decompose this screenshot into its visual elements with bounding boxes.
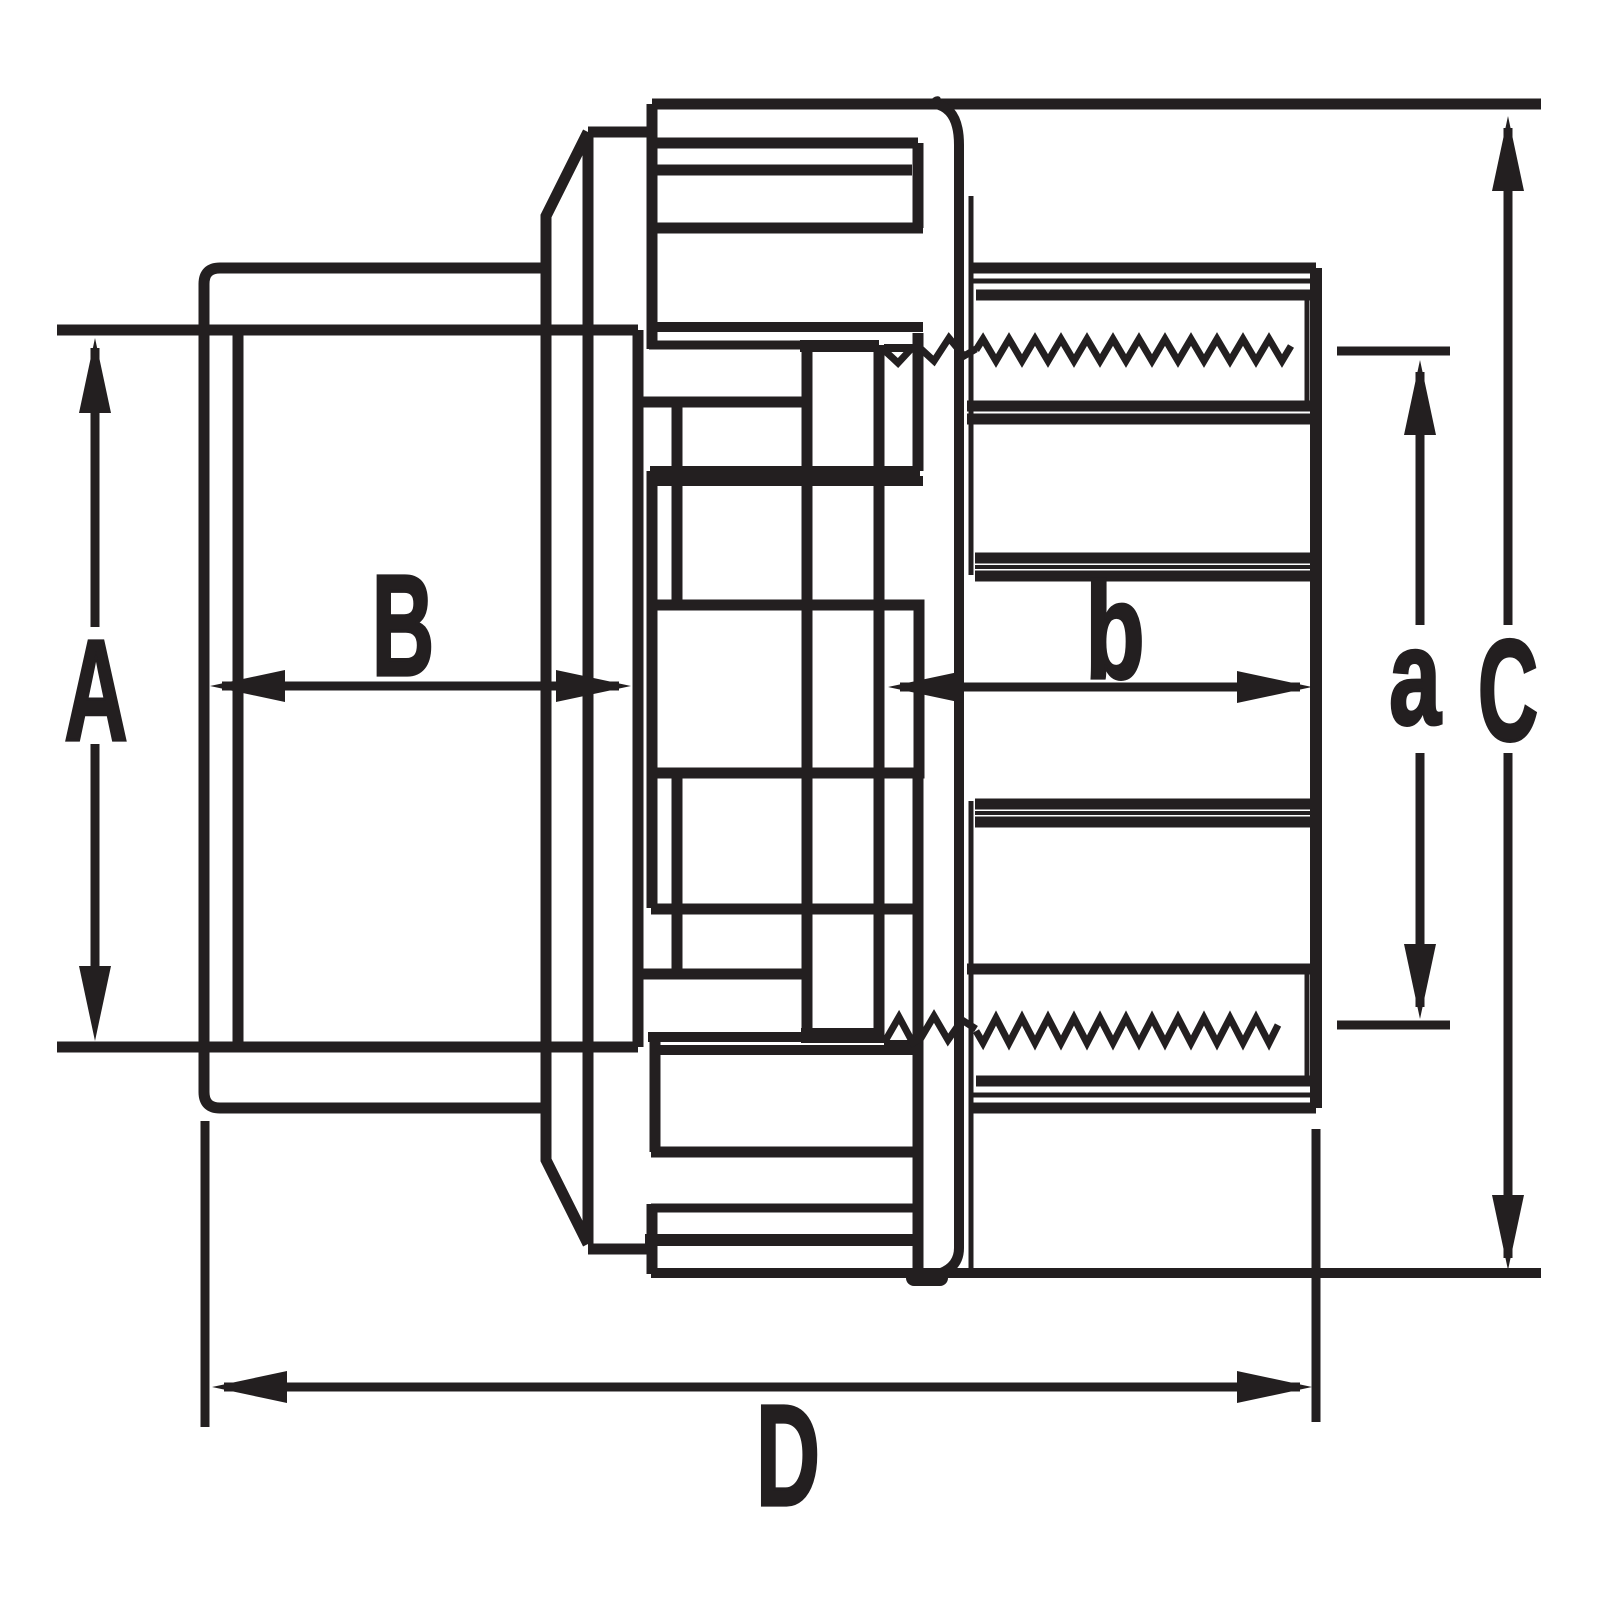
svg-text:A: A <box>64 611 127 772</box>
svg-text:B: B <box>372 546 434 706</box>
svg-text:C: C <box>1478 609 1538 770</box>
svg-text:D: D <box>756 1376 820 1536</box>
svg-text:b: b <box>1085 555 1144 708</box>
svg-text:a: a <box>1389 600 1441 753</box>
